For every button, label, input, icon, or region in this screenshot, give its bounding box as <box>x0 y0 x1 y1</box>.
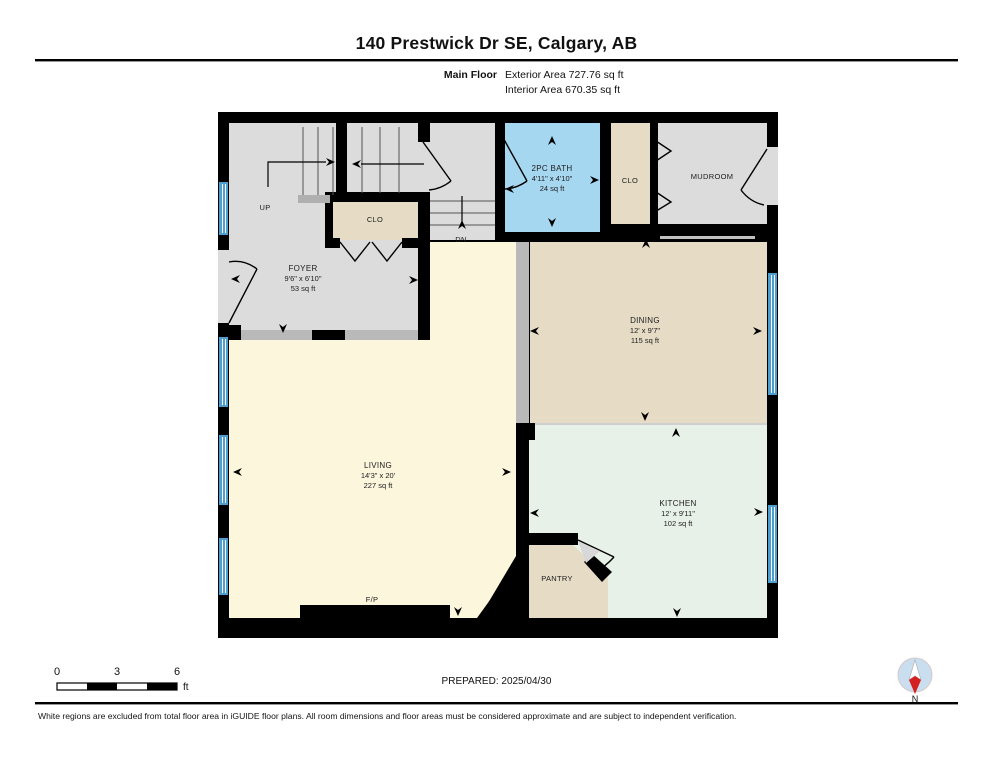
header-rule <box>35 59 958 61</box>
room-label-closet-mudroom: CLO <box>622 176 638 185</box>
room-label-kitchen: KITCHEN 12' x 9'11" 102 sq ft <box>659 499 696 528</box>
stairs-down-label: DN <box>455 235 466 244</box>
footer-rule <box>35 702 958 704</box>
stair-step <box>298 195 330 203</box>
room-label-pantry: PANTRY <box>541 574 573 583</box>
stairs-up-label: UP <box>259 203 270 212</box>
north-label: N <box>912 694 919 704</box>
room-label-living: LIVING 14'3" x 20' 227 sq ft <box>361 461 395 490</box>
window-living-2 <box>219 435 228 505</box>
window-kitchen <box>768 505 777 583</box>
room-label-mudroom: MUDROOM <box>691 172 734 181</box>
disclaimer-text: White regions are excluded from total fl… <box>38 711 968 721</box>
window-living-3 <box>219 538 228 595</box>
window-dining <box>768 273 777 395</box>
mudroom-door-opening <box>767 147 778 205</box>
room-closet-mudroom <box>611 123 650 224</box>
window-foyer <box>219 182 228 235</box>
fireplace-label: F/P <box>366 595 379 604</box>
room-label-foyer: FOYER 9'6" x 6'10" 53 sq ft <box>285 264 322 293</box>
floor-plan-svg <box>0 0 993 768</box>
dining-kitchen-boundary <box>529 423 767 425</box>
mudroom-sill <box>660 236 755 239</box>
room-label-dining: DINING 12' x 9'7" 115 sq ft <box>630 316 660 345</box>
prepared-date: PREPARED: 2025/04/30 <box>0 676 993 687</box>
room-label-closet-foyer: CLO <box>367 215 383 224</box>
front-door-opening <box>218 250 229 323</box>
fireplace-wall <box>300 605 450 620</box>
half-wall-dining <box>516 242 529 423</box>
window-living-1 <box>219 337 228 407</box>
floorplan-page: 140 Prestwick Dr SE, Calgary, AB Main Fl… <box>0 0 993 768</box>
room-label-bath: 2PC BATH 4'11" x 4'10" 24 sq ft <box>532 164 573 193</box>
